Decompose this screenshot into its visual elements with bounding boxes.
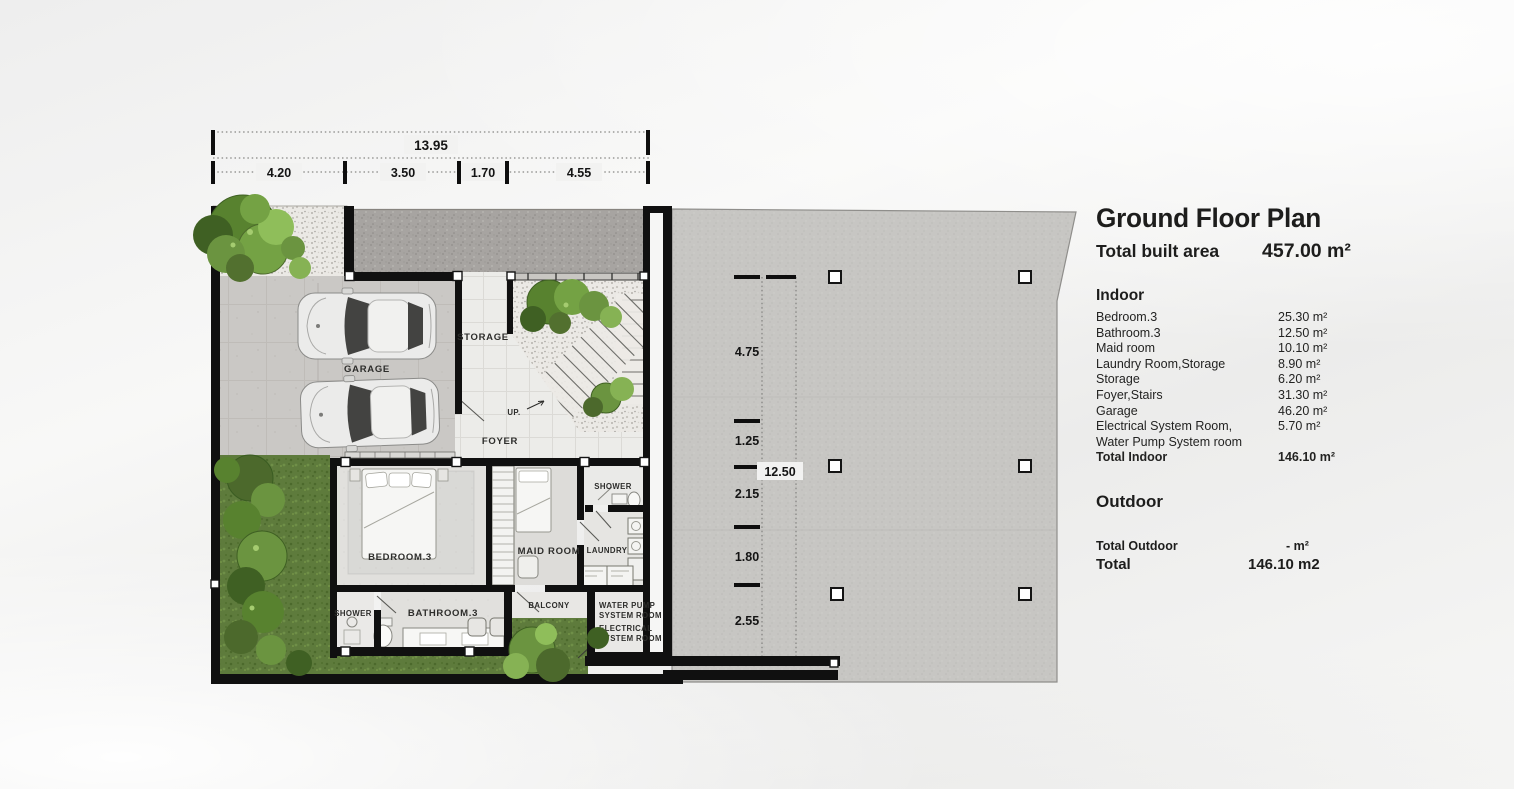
dim-top-seg-3: 1.70 [471,166,495,180]
dim-left-seg-5: 2.55 [735,614,759,628]
area-row-value: 12.50 m² [1278,326,1506,342]
area-row-label: Bedroom.3 [1096,310,1278,326]
total-outdoor-value: - m² [1278,539,1506,553]
area-row-value: 31.30 m² [1278,388,1506,404]
area-row: Bathroom.3 12.50 m² [1096,326,1506,342]
total-indoor-label: Total Indoor [1096,450,1278,466]
area-row: Foyer,Stairs 31.30 m² [1096,388,1506,404]
area-row: Storage 6.20 m² [1096,372,1506,388]
area-row-value [1278,435,1506,451]
built-area-label: Total built area [1096,241,1262,262]
area-row-label: Bathroom.3 [1096,326,1278,342]
page: 13.95 4.20 3.50 1.70 4.55 4.75 1.25 2.15… [0,0,1514,789]
dim-left-seg-1: 4.75 [735,345,759,359]
area-row: Electrical System Room, 5.70 m² [1096,419,1506,435]
total-value: 146.10 m2 [1248,556,1506,573]
area-row-label: Storage [1096,372,1278,388]
car-2 [300,373,441,454]
driveway-strip [350,209,645,273]
dim-left-overall: 12.50 [764,465,795,479]
room-label-storage: STORAGE [457,332,509,343]
area-row-label: Electrical System Room, [1096,419,1278,435]
area-row-label: Foyer,Stairs [1096,388,1278,404]
room-label-maid-room: MAID ROOM [518,546,581,557]
area-row: Water Pump System room [1096,435,1506,451]
garage-door [345,452,455,458]
area-row: Bedroom.3 25.30 m² [1096,310,1506,326]
room-label-laundry: LAUNDRY [587,546,628,555]
car-1 [298,288,436,364]
dim-top-seg-1: 4.20 [267,166,291,180]
dim-top-overall: 13.95 [414,138,448,153]
dim-left-seg-4: 1.80 [735,550,759,564]
area-row-label: Garage [1096,404,1278,420]
room-label-bedroom3: BEDROOM.3 [368,552,432,563]
page-title: Ground Floor Plan [1096,203,1494,233]
total-label: Total [1096,556,1248,573]
area-row-value: 5.70 m² [1278,419,1506,435]
room-label-shower-upper: SHOWER [594,482,632,491]
area-row: Maid room 10.10 m² [1096,341,1506,357]
grass-tuft [587,627,609,649]
area-row-value: 8.90 m² [1278,357,1506,373]
legend-panel: Ground Floor Plan Total built area 457.0… [1096,203,1506,573]
built-area-row: Total built area 457.00 m² [1096,240,1506,263]
room-label-garage: GARAGE [344,364,390,375]
area-row: Laundry Room,Storage 8.90 m² [1096,357,1506,373]
area-row-label: Laundry Room,Storage [1096,357,1278,373]
total-indoor-value: 146.10 m² [1278,450,1506,466]
dim-top-seg-2: 3.50 [391,166,415,180]
total-outdoor-label: Total Outdoor [1096,539,1278,553]
total-row: Total 146.10 m2 [1096,556,1506,573]
indoor-table: Bedroom.3 25.30 m² Bathroom.3 12.50 m² M… [1096,310,1506,466]
room-label-bathroom3: BATHROOM.3 [408,608,478,619]
room-label-balcony: BALCONY [528,601,570,610]
area-row-value: 10.10 m² [1278,341,1506,357]
area-row-label: Maid room [1096,341,1278,357]
indoor-heading: Indoor [1096,287,1506,305]
total-outdoor-row: Total Outdoor - m² [1096,539,1506,553]
dim-left-seg-2: 1.25 [735,434,759,448]
future-slab [672,209,1076,682]
room-label-electrical-1: ELECTRICAL [599,624,652,633]
area-row-value: 6.20 m² [1278,372,1506,388]
dim-top-seg-4: 4.55 [567,166,591,180]
courtyard-railing [510,273,645,280]
room-label-shower-lower: SHOWER [334,609,372,618]
built-area-value: 457.00 m² [1262,240,1351,263]
shower-lower-floor [337,592,374,647]
area-row-label: Water Pump System room [1096,435,1278,451]
room-label-foyer: FOYER [482,436,518,447]
area-row-value: 25.30 m² [1278,310,1506,326]
outdoor-heading: Outdoor [1096,492,1506,512]
area-row: Garage 46.20 m² [1096,404,1506,420]
area-row-value: 46.20 m² [1278,404,1506,420]
total-indoor-row: Total Indoor 146.10 m² [1096,450,1506,466]
room-label-water-pump-2: SYSTEM ROOM [599,611,662,620]
room-label-water-pump-1: WATER PUMP [599,601,655,610]
dim-left-seg-3: 2.15 [735,487,759,501]
room-label-up: UP. [507,408,520,417]
